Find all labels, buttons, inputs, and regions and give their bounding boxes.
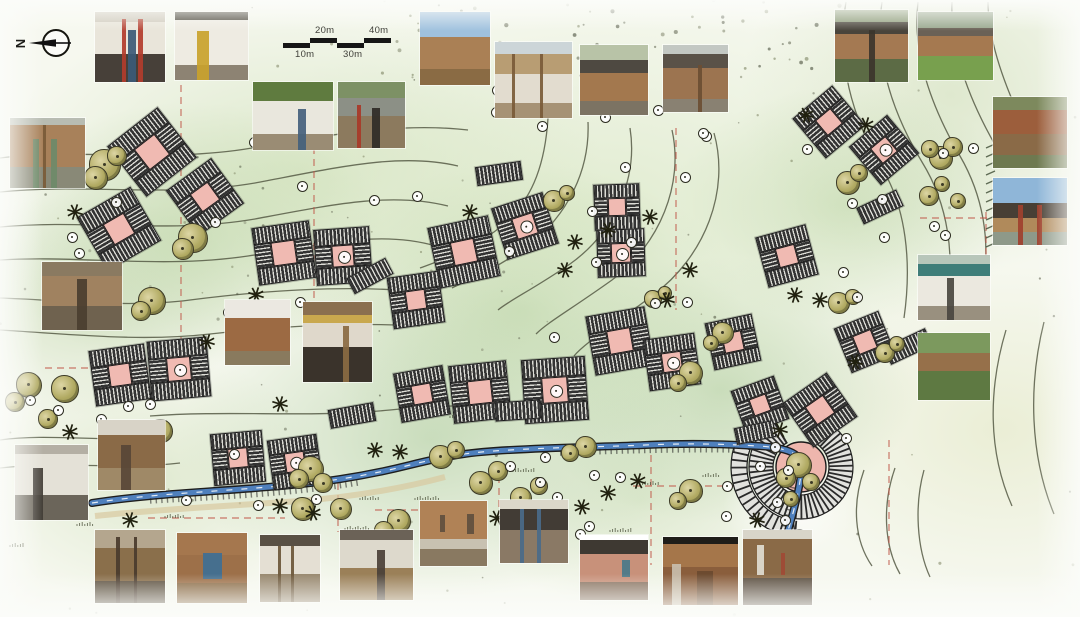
photo-band bbox=[177, 583, 247, 603]
photo-band bbox=[993, 178, 1067, 203]
photo-band bbox=[918, 306, 990, 320]
photo-band bbox=[303, 315, 372, 323]
photo-band bbox=[500, 530, 568, 563]
photo-band bbox=[663, 99, 728, 112]
photo-p08 bbox=[663, 45, 728, 112]
scale-segment bbox=[310, 38, 337, 43]
photo-p22 bbox=[177, 533, 247, 603]
photo-band bbox=[495, 54, 572, 74]
compass-icon bbox=[27, 26, 73, 60]
photo-detail bbox=[672, 564, 681, 605]
photo-band bbox=[663, 54, 728, 67]
photo-p14 bbox=[918, 333, 990, 400]
photo-detail bbox=[537, 509, 540, 563]
north-label: N bbox=[13, 38, 28, 47]
site-plan-canvas: N 10m 20m 30m 40m bbox=[0, 0, 1080, 617]
photo-band bbox=[495, 74, 572, 103]
photo-band bbox=[420, 12, 490, 37]
photo-detail bbox=[51, 139, 57, 188]
photo-band bbox=[918, 353, 990, 370]
photo-band bbox=[10, 125, 85, 167]
scale-label-30m: 30m bbox=[343, 49, 362, 60]
photo-band bbox=[918, 333, 990, 353]
photo-band bbox=[580, 45, 648, 60]
photo-band bbox=[253, 134, 333, 150]
photo-band bbox=[303, 302, 372, 315]
photo-detail bbox=[698, 65, 702, 112]
photo-detail bbox=[757, 545, 764, 575]
photo-band bbox=[663, 537, 738, 544]
photo-p02 bbox=[175, 12, 248, 80]
photo-band bbox=[10, 118, 85, 125]
photo-band bbox=[918, 255, 990, 264]
photo-band bbox=[95, 12, 165, 22]
photo-detail bbox=[138, 19, 143, 82]
photo-band bbox=[260, 574, 320, 602]
photo-band bbox=[993, 155, 1067, 168]
photo-p06 bbox=[495, 42, 572, 118]
photo-p19 bbox=[15, 445, 88, 520]
photo-detail bbox=[540, 54, 543, 118]
photo-band bbox=[340, 530, 413, 540]
scale-segment bbox=[337, 43, 364, 48]
photo-detail bbox=[278, 546, 281, 602]
photo-band bbox=[743, 539, 812, 578]
photo-band bbox=[420, 539, 487, 549]
photo-detail bbox=[440, 515, 445, 532]
photo-band bbox=[175, 12, 248, 20]
photo-detail bbox=[33, 139, 39, 188]
photo-band bbox=[580, 60, 648, 73]
photo-band bbox=[580, 554, 648, 581]
photo-band bbox=[420, 37, 490, 69]
photo-band bbox=[225, 351, 290, 365]
scale-bar: 10m 20m 30m 40m bbox=[283, 27, 399, 63]
photo-band bbox=[993, 232, 1067, 245]
photo-band bbox=[835, 10, 908, 22]
photo-band bbox=[42, 262, 122, 276]
photo-detail bbox=[467, 514, 474, 534]
photo-band bbox=[580, 73, 648, 101]
photo-detail bbox=[947, 278, 954, 320]
scale-label-40m: 40m bbox=[369, 25, 388, 36]
photo-p23 bbox=[260, 535, 320, 602]
photo-p09 bbox=[835, 10, 908, 82]
photo-p24 bbox=[340, 530, 413, 600]
photo-band bbox=[95, 530, 165, 548]
photo-p25 bbox=[420, 501, 487, 566]
photo-band bbox=[98, 420, 165, 435]
photo-p28 bbox=[663, 537, 738, 605]
photo-detail bbox=[1037, 205, 1041, 245]
photo-band bbox=[260, 546, 320, 574]
photo-detail bbox=[357, 105, 362, 148]
photo-detail bbox=[121, 445, 132, 491]
photo-band bbox=[175, 65, 248, 80]
photo-detail bbox=[43, 125, 46, 188]
photo-band bbox=[580, 540, 648, 554]
photo-detail bbox=[197, 31, 209, 80]
photo-detail bbox=[128, 30, 136, 83]
photo-p10 bbox=[918, 12, 993, 80]
photo-band bbox=[15, 445, 88, 454]
photo-band bbox=[663, 45, 728, 54]
photo-band bbox=[253, 101, 333, 134]
photo-band bbox=[15, 495, 88, 521]
photo-detail bbox=[122, 19, 127, 82]
photo-detail bbox=[697, 571, 714, 605]
photo-band bbox=[420, 501, 487, 539]
photo-p17 bbox=[225, 300, 290, 365]
photo-p18 bbox=[303, 302, 372, 382]
north-arrow: N bbox=[16, 26, 73, 60]
scale-segment bbox=[364, 38, 391, 43]
photo-detail bbox=[1018, 205, 1022, 245]
photo-band bbox=[993, 218, 1067, 231]
photo-band bbox=[580, 101, 648, 115]
photo-band bbox=[918, 28, 993, 36]
photo-band bbox=[253, 82, 333, 101]
photo-band bbox=[338, 82, 405, 98]
photo-p04 bbox=[338, 82, 405, 148]
photo-band bbox=[10, 167, 85, 188]
photo-detail bbox=[203, 553, 223, 580]
photo-detail bbox=[781, 553, 785, 576]
photo-p12 bbox=[993, 178, 1067, 245]
photo-band bbox=[225, 300, 290, 318]
photo-band bbox=[95, 581, 165, 603]
photo-band bbox=[495, 42, 572, 54]
photo-band bbox=[918, 12, 993, 28]
photo-band bbox=[743, 530, 812, 539]
photo-p21 bbox=[95, 530, 165, 603]
photo-detail bbox=[134, 537, 138, 603]
photo-band bbox=[663, 68, 728, 99]
photo-band bbox=[918, 36, 993, 55]
photo-band bbox=[260, 535, 320, 546]
photo-band bbox=[225, 318, 290, 351]
photo-p16 bbox=[42, 262, 122, 330]
photo-band bbox=[175, 20, 248, 65]
photo-band bbox=[918, 264, 990, 276]
photo-detail bbox=[77, 279, 87, 330]
photo-p29 bbox=[743, 530, 812, 605]
photo-p03 bbox=[253, 82, 333, 150]
photo-detail bbox=[291, 546, 294, 602]
photo-detail bbox=[116, 537, 120, 603]
photo-band bbox=[98, 435, 165, 467]
photo-detail bbox=[33, 468, 44, 521]
photo-band bbox=[918, 276, 990, 306]
photo-p26 bbox=[500, 500, 568, 563]
scale-segment bbox=[283, 43, 310, 48]
photo-detail bbox=[372, 108, 380, 148]
photo-band bbox=[500, 509, 568, 530]
photo-band bbox=[420, 549, 487, 566]
photo-detail bbox=[869, 30, 876, 82]
photo-band bbox=[495, 103, 572, 118]
photo-band bbox=[993, 97, 1067, 110]
photo-detail bbox=[298, 109, 306, 150]
photo-band bbox=[993, 110, 1067, 134]
photo-detail bbox=[512, 54, 515, 118]
photos-layer bbox=[0, 0, 1080, 617]
scale-label-20m: 20m bbox=[315, 25, 334, 36]
photo-p11 bbox=[993, 97, 1067, 168]
photo-detail bbox=[343, 326, 349, 382]
photo-band bbox=[303, 323, 372, 347]
photo-band bbox=[420, 69, 490, 85]
photo-detail bbox=[377, 550, 386, 600]
photo-p20 bbox=[98, 420, 165, 490]
photo-p05 bbox=[420, 12, 490, 85]
photo-band bbox=[743, 578, 812, 605]
photo-band bbox=[500, 500, 568, 509]
photo-band bbox=[918, 371, 990, 400]
photo-p13 bbox=[918, 255, 990, 320]
photo-p15 bbox=[10, 118, 85, 188]
photo-band bbox=[15, 454, 88, 495]
photo-band bbox=[580, 582, 648, 600]
photo-band bbox=[95, 548, 165, 582]
photo-band bbox=[303, 347, 372, 382]
photo-band bbox=[918, 56, 993, 80]
photo-p01 bbox=[95, 12, 165, 82]
photo-band bbox=[993, 134, 1067, 155]
photo-band bbox=[993, 203, 1067, 218]
photo-p27 bbox=[580, 535, 648, 600]
photo-p07 bbox=[580, 45, 648, 115]
photo-detail bbox=[520, 509, 523, 563]
photo-detail bbox=[622, 560, 630, 577]
scale-label-10m: 10m bbox=[295, 49, 314, 60]
photo-band bbox=[98, 468, 165, 490]
